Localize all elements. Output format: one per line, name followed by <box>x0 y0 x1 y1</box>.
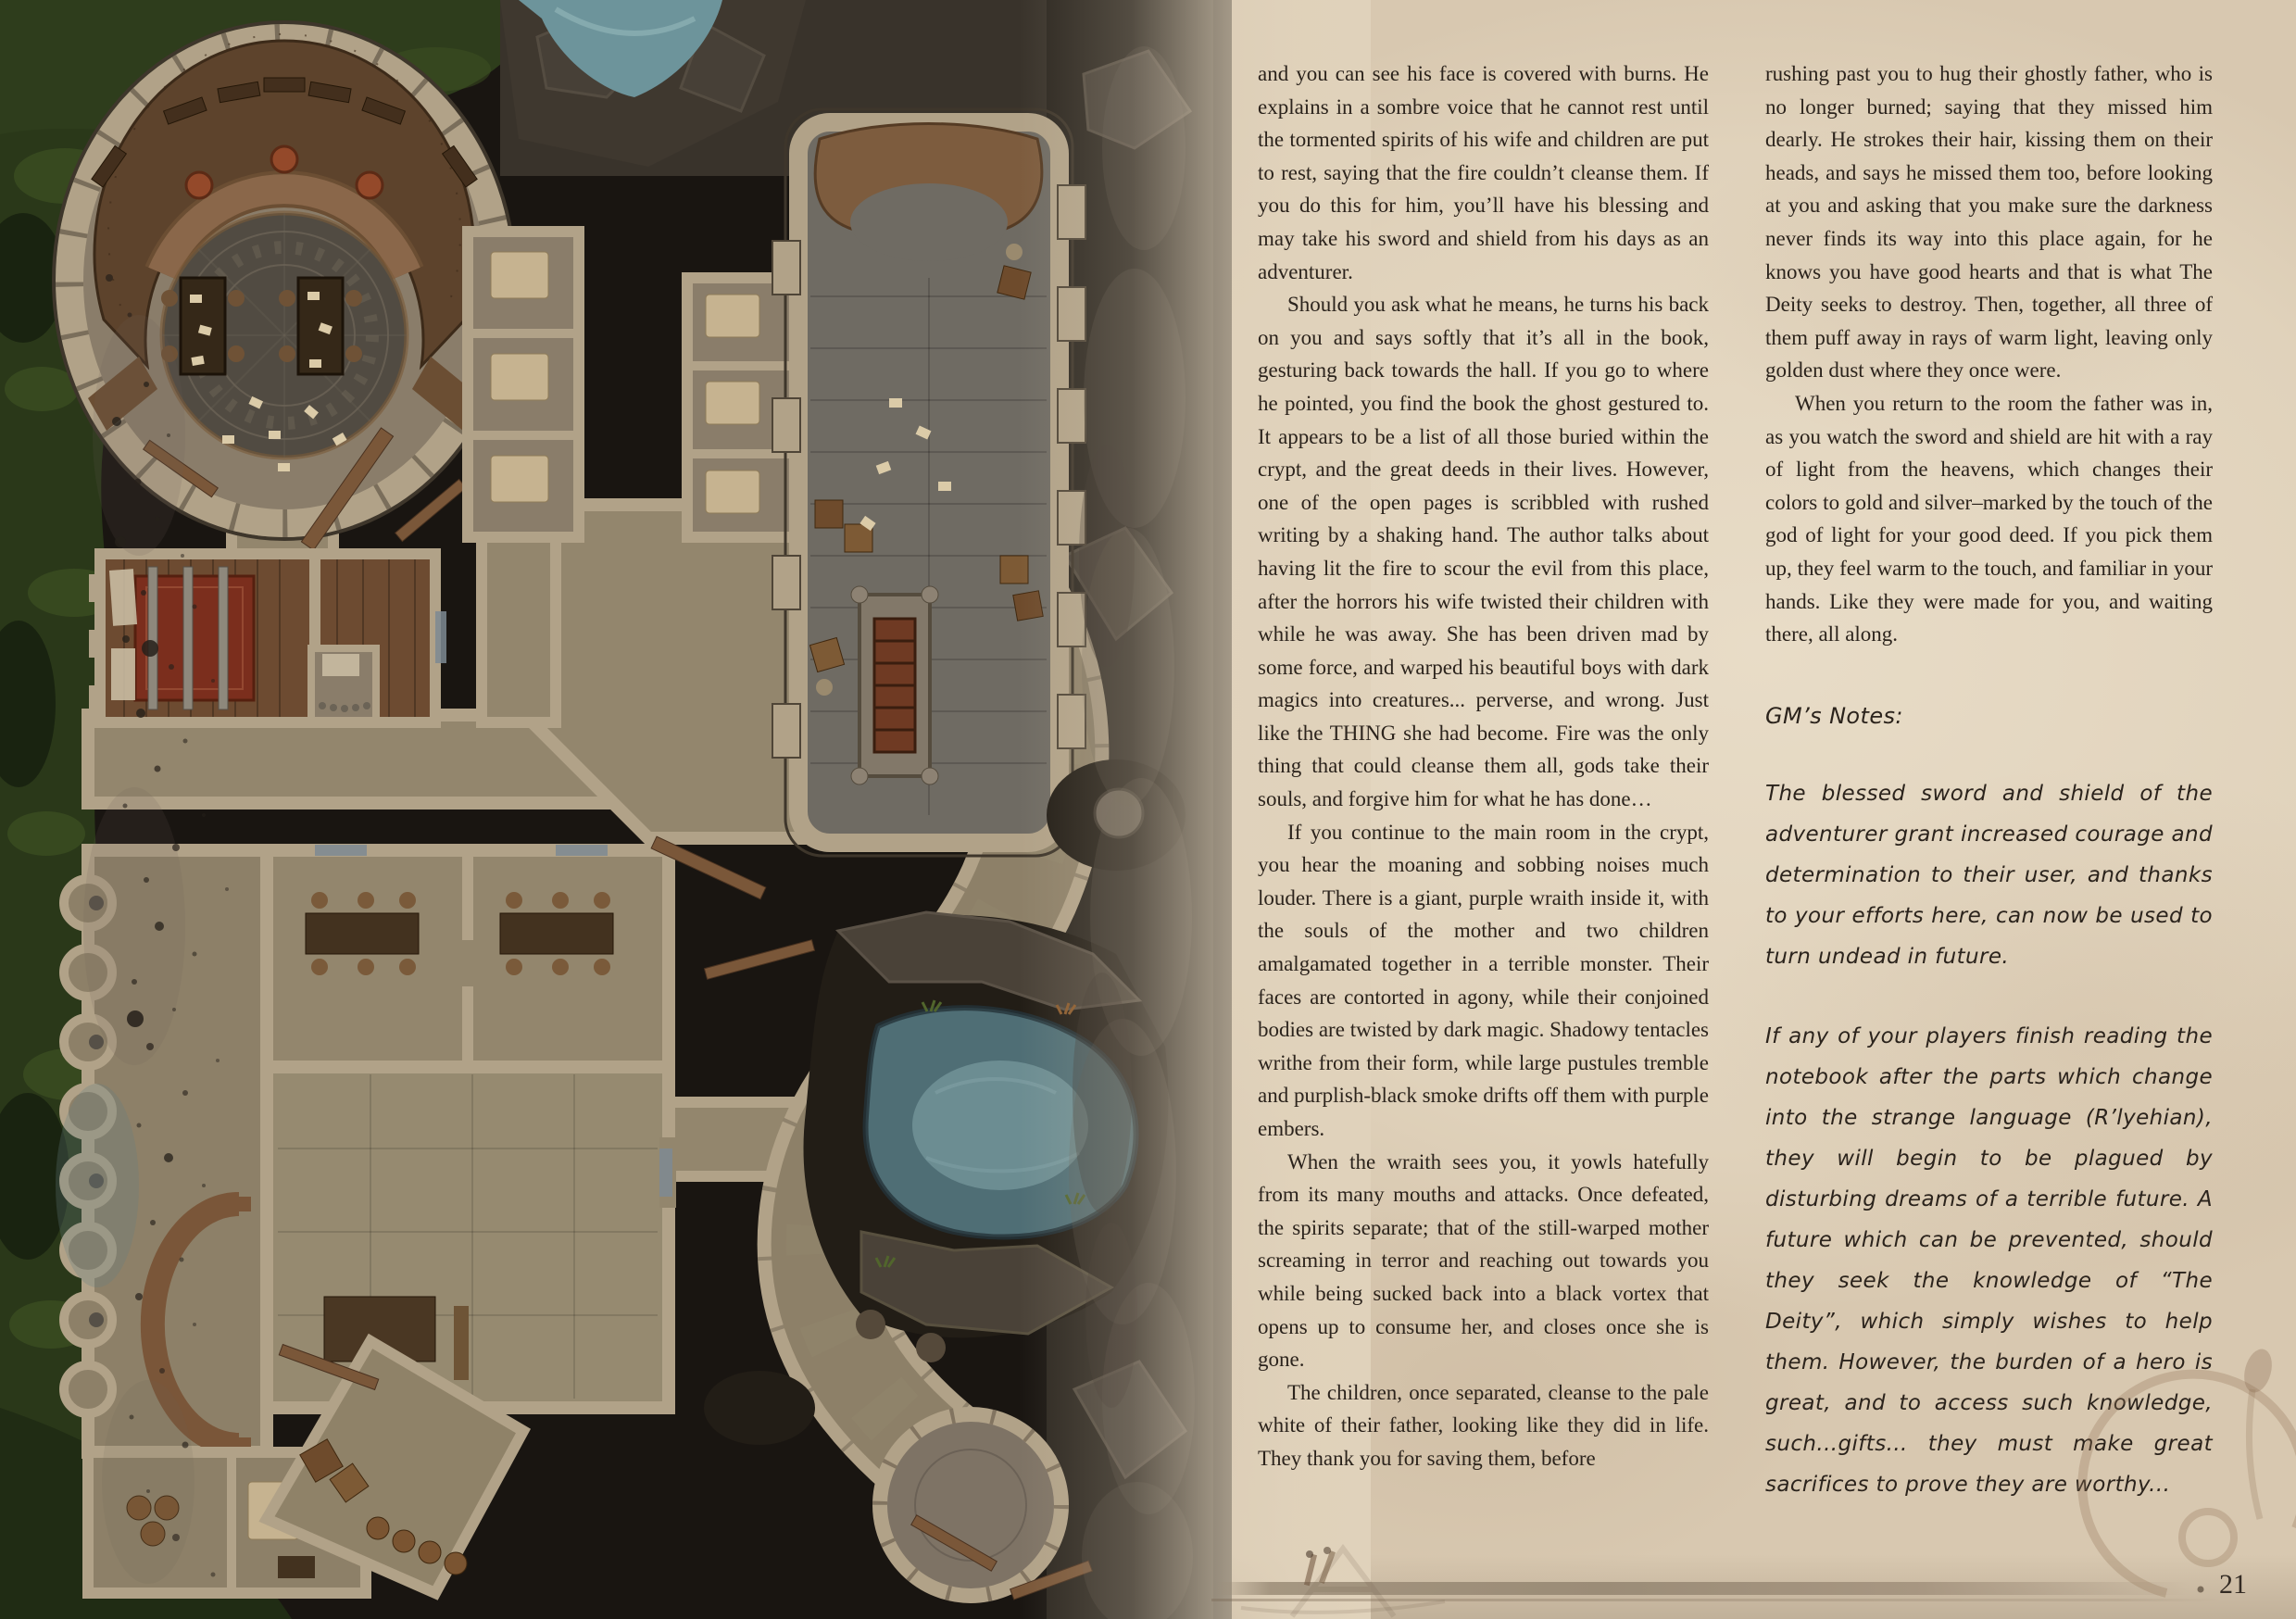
bench <box>454 1306 469 1380</box>
crate <box>815 500 843 528</box>
ink-splatter <box>0 0 370 1619</box>
page-number-dot <box>2198 1587 2204 1593</box>
page: and you can see his face is covered with… <box>0 0 2296 1619</box>
bed <box>706 471 759 513</box>
story-paragraph: If you continue to the main room in the … <box>1258 816 1709 1146</box>
gm-notes-paragraph: The blessed sword and shield of the adve… <box>1765 773 2213 977</box>
dungeon-map <box>0 0 1389 1619</box>
bed <box>491 456 548 502</box>
barrel <box>393 1530 415 1552</box>
gm-notes-heading: GM’s Notes: <box>1765 697 2213 734</box>
story-paragraph: The children, once separated, cleanse to… <box>1258 1376 1709 1475</box>
bed <box>491 354 548 400</box>
story-paragraph: and you can see his face is covered with… <box>1258 57 1709 288</box>
gm-notes-paragraph: If any of your players finish reading th… <box>1765 1016 2213 1505</box>
story-paragraph: Should you ask what he means, he turns h… <box>1258 288 1709 816</box>
table <box>500 913 613 954</box>
bed <box>706 382 759 424</box>
barrel <box>445 1552 467 1575</box>
story-paragraph: rushing past you to hug their ghostly fa… <box>1765 57 2213 387</box>
barrel <box>419 1541 441 1563</box>
bed <box>491 252 548 298</box>
story-paragraph: When the wraith sees you, it yowls hatef… <box>1258 1146 1709 1376</box>
text-column-right: rushing past you to hug their ghostly fa… <box>1765 57 2213 1505</box>
footer-divider <box>1211 1582 2189 1595</box>
text-column-left: and you can see his face is covered with… <box>1258 57 1709 1475</box>
page-number: 21 <box>2219 1569 2247 1600</box>
story-paragraph: When you return to the room the father w… <box>1765 387 2213 651</box>
bed <box>706 295 759 337</box>
footer-divider-line <box>1211 1599 2221 1601</box>
